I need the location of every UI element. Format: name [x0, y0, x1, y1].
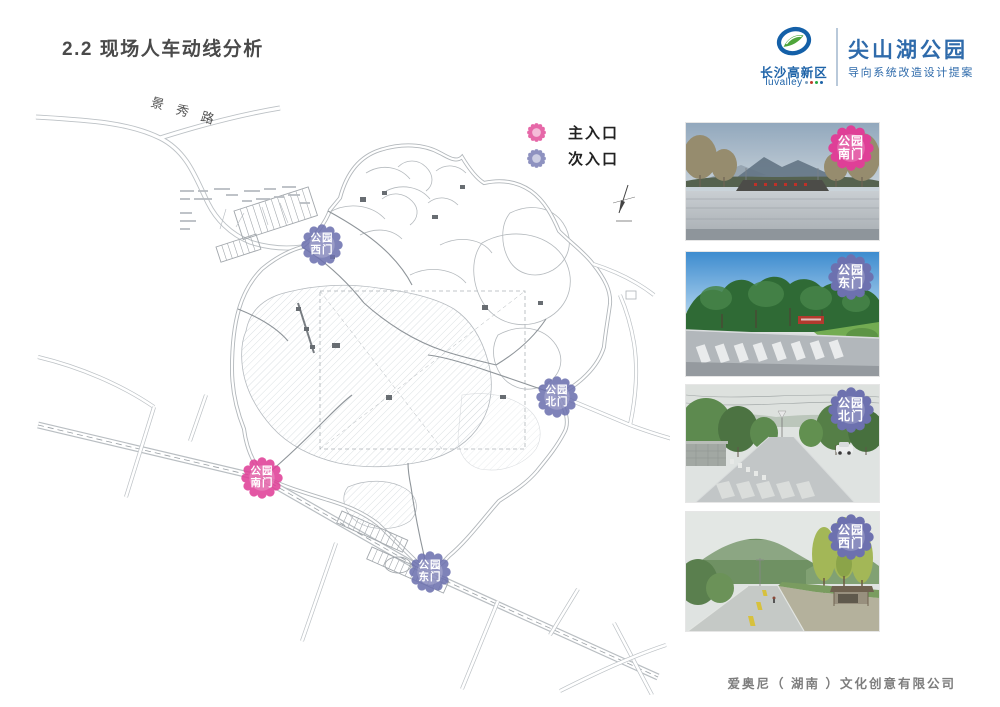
photo-badge-east-gate: 公园东门 — [828, 254, 874, 300]
photo-north-gate: 公园北门 — [686, 385, 879, 502]
photo-east-gate: 公园东门 — [686, 252, 879, 376]
site-plan-map: 景秀路 公园西门 公园北门 公园南门 公园东门 — [30, 95, 670, 695]
map-marker-south-gate: 公园南门 — [241, 457, 283, 499]
page-title: 2.2 现场人车动线分析 — [62, 34, 264, 61]
map-marker-west-gate: 公园西门 — [301, 224, 343, 266]
logo-dot-icon — [815, 81, 818, 84]
lake-area — [242, 285, 492, 466]
photo-badge-south-gate: 公园南门 — [828, 125, 874, 171]
photo-south-gate: 公园南门 — [686, 123, 879, 240]
map-marker-east-gate: 公园东门 — [409, 551, 451, 593]
photo-west-gate: 公园西门 — [686, 512, 879, 631]
west-approach-road — [38, 357, 154, 407]
cad-annotations — [180, 187, 310, 229]
luvalley-logo-icon — [770, 26, 818, 62]
logo-dot-icon — [805, 81, 808, 84]
logo-dot-icon — [820, 81, 823, 84]
north-arrow-icon — [613, 185, 635, 221]
logo-org-name-en: luvalley — [748, 77, 840, 88]
slide-page: 2.2 现场人车动线分析 长沙高新区 luvalley 尖山湖公园 导向系统改造… — [0, 0, 1000, 707]
jingxiu-road — [36, 108, 302, 248]
header-brand: 长沙高新区 luvalley 尖山湖公园 导向系统改造设计提案 — [748, 26, 988, 92]
map-marker-north-gate: 公园北门 — [536, 376, 578, 418]
photo-badge-north-gate: 公园北门 — [828, 387, 874, 433]
project-subtitle: 导向系统改造设计提案 — [848, 64, 974, 80]
wetland-area — [458, 394, 540, 470]
project-title: 尖山湖公园 — [848, 34, 968, 64]
logo-dot-icon — [810, 81, 813, 84]
company-footer: 爱奥尼（ 湖南 ）文化创意有限公司 — [728, 673, 956, 692]
pond-area — [344, 481, 417, 528]
photo-badge-west-gate: 公园西门 — [828, 514, 874, 560]
header-divider — [836, 28, 838, 86]
